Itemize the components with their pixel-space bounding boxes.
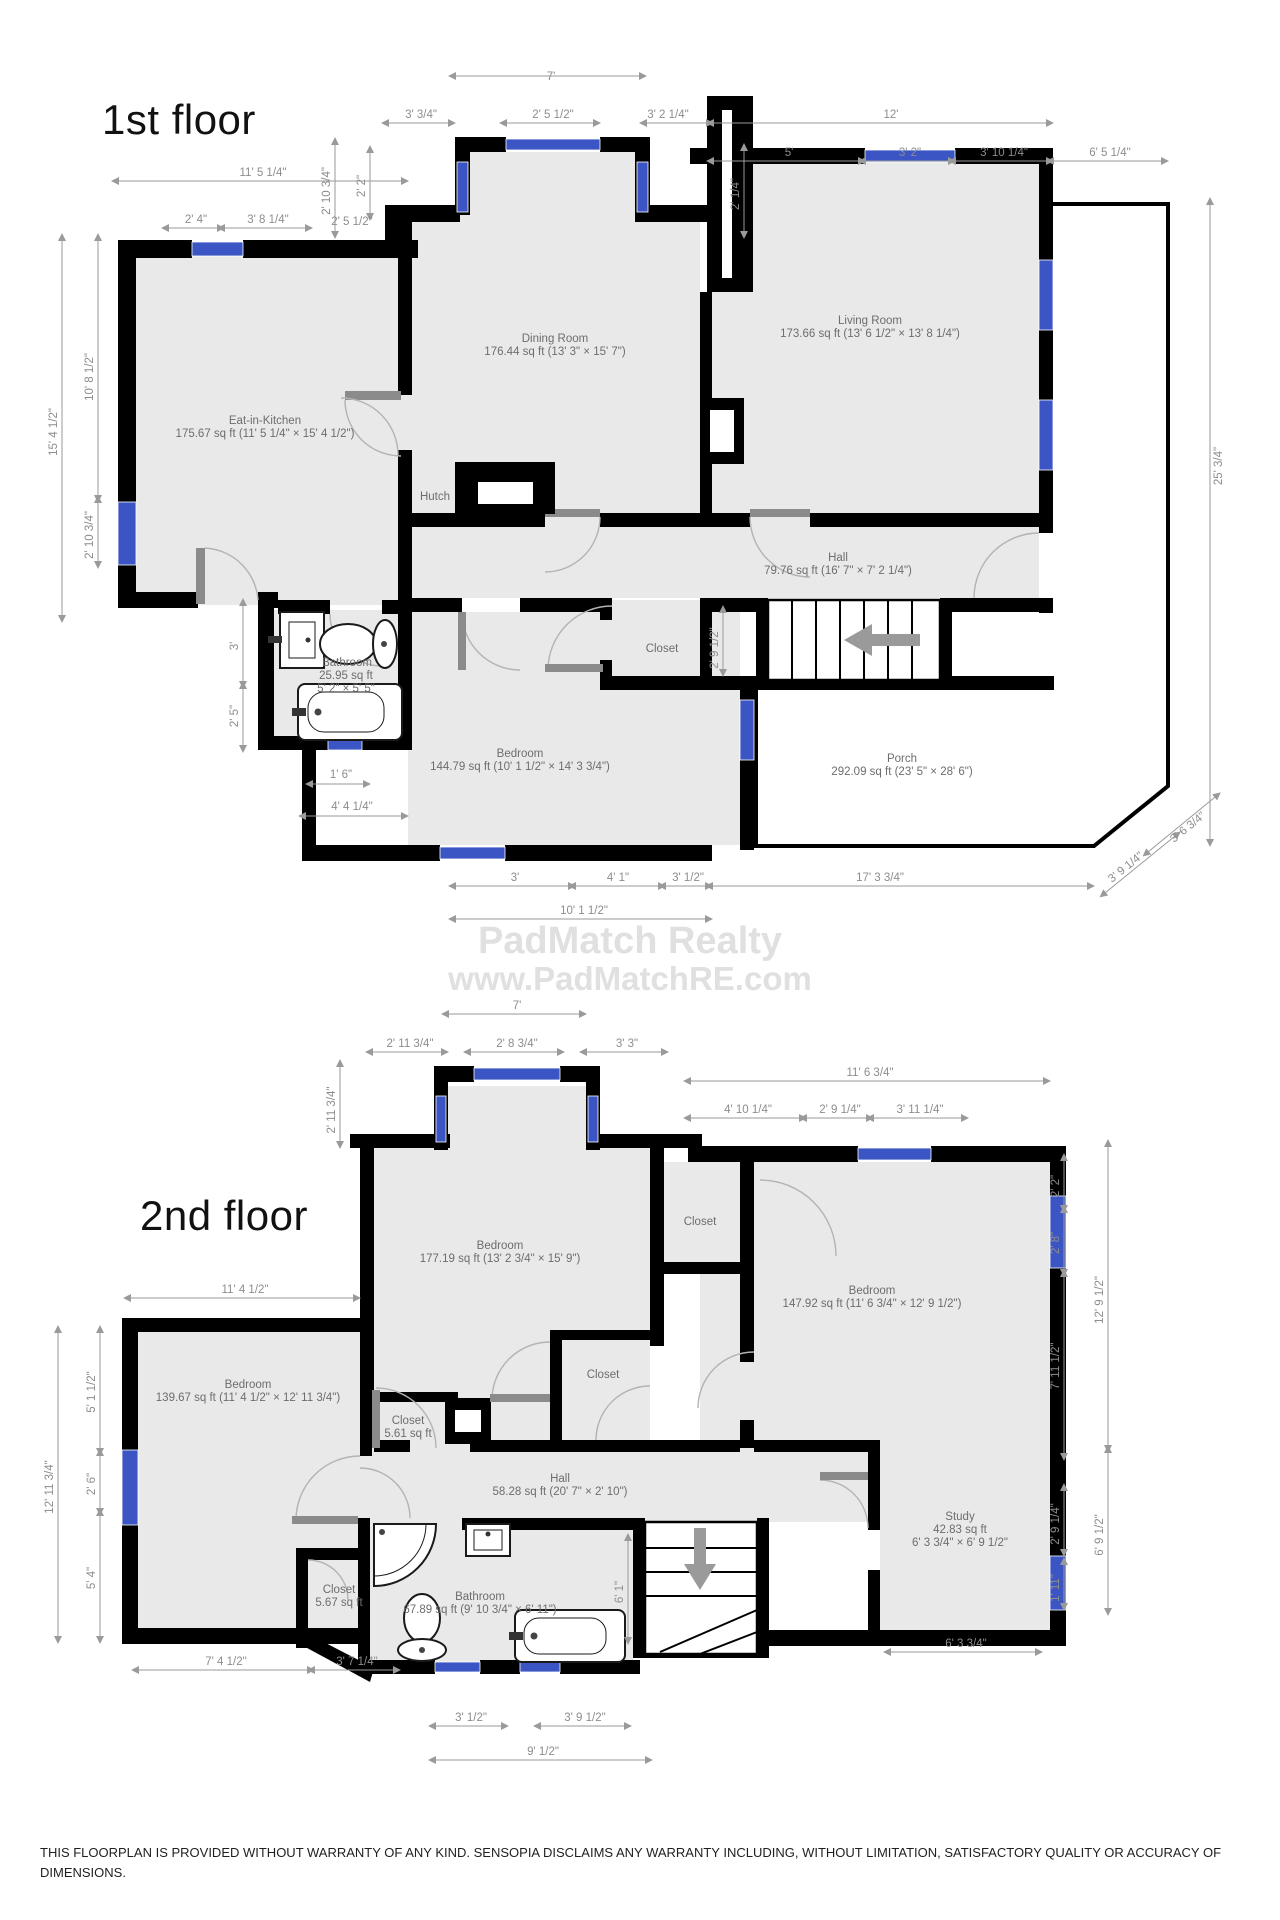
room-name: Bathroom xyxy=(455,1591,505,1603)
dim-label: 11' 6 3/4" xyxy=(847,1067,894,1079)
dim-label: 2' 8" xyxy=(1050,1232,1062,1254)
room-area: 5.67 sq ft xyxy=(315,1597,363,1609)
room-name: Closet xyxy=(684,1216,717,1228)
dim-label: 4' 4 1/4" xyxy=(331,801,372,813)
dim-label: 2' 2" xyxy=(1050,1175,1062,1197)
hutch-cabinet xyxy=(455,462,555,514)
dim-label: 12' 9 1/2" xyxy=(1094,1276,1106,1324)
dim-label: 3' 9 1/4" xyxy=(1106,850,1146,885)
room-area: 292.09 sq ft (23' 5" × 28' 6") xyxy=(831,766,973,778)
room-area: 139.67 sq ft (11' 4 1/2" × 12' 11 3/4") xyxy=(156,1392,341,1404)
room-area: 5.61 sq ft xyxy=(384,1428,432,1440)
floor1-stairs xyxy=(768,600,940,680)
dim-label: 2' 11 3/4" xyxy=(326,1087,338,1134)
room-name: Bedroom xyxy=(477,1240,524,1252)
dim-label: 3' 2" xyxy=(899,147,921,159)
room-name: Bathroom xyxy=(322,657,372,669)
dim-label: 2' 5" xyxy=(229,705,241,727)
room-area: 25.95 sq ft xyxy=(319,670,374,682)
dim-label: 6' 3 3/4" xyxy=(945,1638,986,1650)
dim-label: 11' 4 1/2" xyxy=(222,1284,269,1296)
room-area: 173.66 sq ft (13' 6 1/2" × 13' 8 1/4") xyxy=(780,328,960,340)
room-name: Closet xyxy=(323,1584,356,1596)
floorplan-page: 1st floor 2nd floor PadMatch Realty www.… xyxy=(0,0,1280,1920)
room-name: Bedroom xyxy=(225,1379,272,1391)
room-name: Eat-in-Kitchen xyxy=(229,415,301,427)
room-area: 144.79 sq ft (10' 1 1/2" × 14' 3 3/4") xyxy=(430,761,610,773)
disclaimer-text: THIS FLOORPLAN IS PROVIDED WITHOUT WARRA… xyxy=(40,1843,1255,1883)
room-name: Hall xyxy=(550,1473,570,1485)
dim-label: 7' xyxy=(547,71,556,83)
dim-label: 3' xyxy=(229,642,241,651)
dim-label: 2' 9 1/2" xyxy=(709,627,721,668)
room-area: 176.44 sq ft (13' 3" × 15' 7") xyxy=(484,346,626,358)
dim-label: 12' 11 3/4" xyxy=(44,1460,56,1513)
floor1-plan: Eat-in-Kitchen 175.67 sq ft (11' 5 1/4" … xyxy=(48,71,1225,919)
dim-label: 3' 7 1/4" xyxy=(336,1656,377,1668)
dim-label: 3' 11 1/4" xyxy=(897,1104,944,1116)
bathroom-sink-icon xyxy=(466,1524,510,1556)
dim-label: 2' 2" xyxy=(356,175,368,197)
dim-label: 10' 8 1/2" xyxy=(84,353,96,401)
floorplan-drawing: Eat-in-Kitchen 175.67 sq ft (11' 5 1/4" … xyxy=(0,0,1280,1920)
room-name: Closet xyxy=(392,1415,425,1427)
dim-label: 6' 9 1/2" xyxy=(1094,1514,1106,1555)
dim-label: 3' 3" xyxy=(616,1038,638,1050)
dim-label: 6' 1" xyxy=(614,1581,626,1603)
dim-label: 2' 5 1/2" xyxy=(532,109,573,121)
room-name: Hall xyxy=(828,552,848,564)
dim-label: 4' 1" xyxy=(607,872,629,884)
dim-label: 17' 3 3/4" xyxy=(856,872,904,884)
room-area: 67.89 sq ft (9' 10 3/4" × 6' 11") xyxy=(403,1604,556,1616)
floor2-stairs xyxy=(645,1522,757,1654)
room-name: Porch xyxy=(887,753,917,765)
dim-label: 2' 11 3/4" xyxy=(387,1038,434,1050)
dim-label: 11' 5 1/4" xyxy=(240,167,287,179)
dim-label: 12' xyxy=(884,109,899,121)
room-name: Closet xyxy=(646,643,679,655)
dim-label: 3' 6 3/4" xyxy=(1168,810,1208,845)
room-area: 175.67 sq ft (11' 5 1/4" × 15' 4 1/2") xyxy=(176,428,355,440)
room-area: 42.83 sq ft xyxy=(933,1524,988,1536)
dim-label: 2' 8 3/4" xyxy=(496,1038,537,1050)
bathtub-icon xyxy=(509,1610,625,1662)
dim-label: 7' 4 1/2" xyxy=(205,1656,246,1668)
dim-label: 7' 11 1/2" xyxy=(1050,1343,1062,1390)
room-name: Bedroom xyxy=(849,1285,896,1297)
dim-label: 5' xyxy=(785,147,794,159)
floor2-plan: Bedroom 177.19 sq ft (13' 2 3/4" × 15' 9… xyxy=(44,1000,1108,1760)
dim-label: 2' 10 3/4" xyxy=(321,167,333,215)
closet-chase-slot xyxy=(455,1410,481,1432)
flue-slot xyxy=(710,410,734,452)
room-name: Living Room xyxy=(838,315,902,327)
dim-label: 2' 1/4" xyxy=(730,178,742,210)
dim-label: 6' 5 1/4" xyxy=(1089,147,1130,159)
dim-label: 5' 1 1/2" xyxy=(86,1371,98,1412)
dim-label: 3' 9 1/2" xyxy=(564,1712,605,1724)
dim-label: 3' xyxy=(511,872,520,884)
dim-label: 2' 9 1/4" xyxy=(819,1104,860,1116)
dim-label: 3' 8 1/4" xyxy=(247,214,288,226)
room-name: Bedroom xyxy=(497,748,544,760)
dim-label: 5' 4" xyxy=(86,1567,98,1589)
dim-label: 2' 10 3/4" xyxy=(84,511,96,559)
dim-label: 7' xyxy=(513,1000,522,1012)
room-name: Dining Room xyxy=(522,333,588,345)
room-area: 147.92 sq ft (11' 6 3/4" × 12' 9 1/2") xyxy=(783,1298,962,1310)
dim-label: 10' 1 1/2" xyxy=(560,905,608,917)
dim-label: 3' 2 1/4" xyxy=(647,109,688,121)
dim-label: 3' 1/2" xyxy=(455,1712,487,1724)
room-name: Study xyxy=(945,1511,975,1523)
dim-label: 1' 6" xyxy=(330,769,352,781)
room-area: 79.76 sq ft (16' 7" × 7' 2 1/4") xyxy=(764,565,912,577)
dim-label: 3' 3/4" xyxy=(405,109,437,121)
dim-label: 1' 11" xyxy=(1050,1574,1062,1602)
dim-label: 15' 4 1/2" xyxy=(48,408,60,456)
dim-label: 4' 10 1/4" xyxy=(724,1104,772,1116)
room-dims: 5' 2" × 5' 5" xyxy=(317,683,375,695)
room-area: 177.19 sq ft (13' 2 3/4" × 15' 9") xyxy=(420,1253,581,1265)
dim-label: 25' 3/4" xyxy=(1213,447,1225,485)
dim-label: 2' 9 1/4" xyxy=(1050,1503,1062,1544)
dim-label: 3' 1/2" xyxy=(672,872,704,884)
dim-label: 3' 10 1/4" xyxy=(980,147,1028,159)
dim-label: 2' 5 1/2" xyxy=(331,216,372,228)
dim-label: 9' 1/2" xyxy=(527,1746,559,1758)
room-area: 58.28 sq ft (20' 7" × 2' 10") xyxy=(493,1486,628,1498)
dim-label: 2' 6" xyxy=(86,1473,98,1495)
room-name: Closet xyxy=(587,1369,620,1381)
room-dims: 6' 3 3/4" × 6' 9 1/2" xyxy=(912,1537,1008,1549)
room-name: Hutch xyxy=(420,491,450,503)
dim-label: 2' 4" xyxy=(185,214,207,226)
